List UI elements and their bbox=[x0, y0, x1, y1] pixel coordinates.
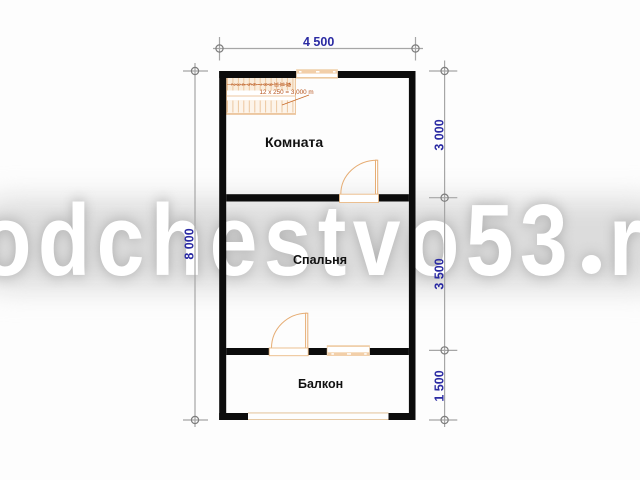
svg-text:4: 4 bbox=[240, 83, 246, 86]
svg-text:11: 11 bbox=[279, 82, 285, 87]
svg-text:7: 7 bbox=[256, 83, 262, 86]
svg-text:9: 9 bbox=[267, 83, 273, 86]
svg-text:12 x 250 = 3,000 m: 12 x 250 = 3,000 m bbox=[260, 89, 314, 96]
svg-text:12: 12 bbox=[285, 82, 291, 88]
svg-text:10: 10 bbox=[273, 82, 279, 88]
